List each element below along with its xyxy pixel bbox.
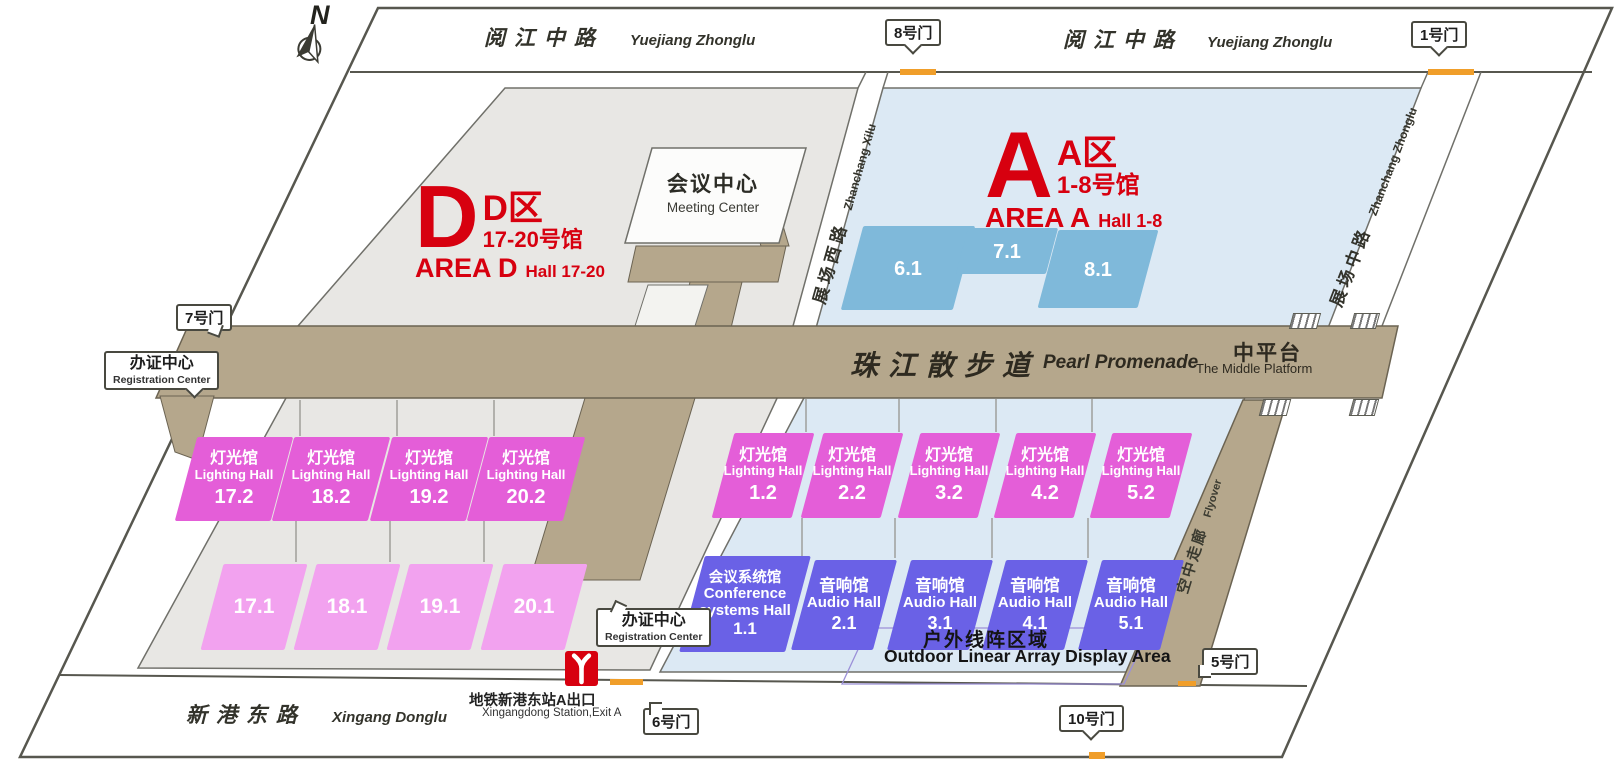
road-en: Yuejiang Zhonglu (1207, 34, 1332, 51)
gate-1-marker (1428, 69, 1474, 75)
hall-20-2: 灯光馆 Lighting Hall 20.2 (478, 437, 574, 521)
hall-number: 6.1 (894, 258, 922, 280)
meeting-center-zh: 会议中心 (643, 168, 783, 198)
meeting-center-en: Meeting Center (643, 200, 783, 215)
annex-building (635, 285, 708, 326)
hall-1-2: 灯光馆 Lighting Hall 1.2 (723, 433, 803, 518)
basemap (0, 0, 1617, 772)
area-a-letter: A (985, 128, 1051, 201)
hall-en-label: Audio Hall (903, 595, 977, 612)
stairs-icon (1349, 399, 1380, 416)
hall-number: 17.1 (234, 595, 275, 619)
area-d-letter: D (415, 183, 477, 252)
gate-6-marker (610, 679, 643, 685)
hall-en-label: Lighting Hall (1006, 464, 1085, 479)
hall-en-label: Audio Hall (1094, 595, 1168, 612)
hall-number: 20.2 (507, 486, 546, 508)
hall-2-2: 灯光馆 Lighting Hall 2.2 (812, 433, 892, 518)
road-en: Xingang Donglu (332, 709, 447, 726)
hall-en-label: Audio Hall (998, 595, 1072, 612)
hall-en-label: Audio Hall (807, 595, 881, 612)
hall-6-1: 6.1 (852, 226, 964, 310)
hall-zh-label: 灯光馆 (405, 450, 453, 468)
hall-zh-label: 灯光馆 (828, 447, 876, 465)
hall-number: 18.1 (327, 595, 368, 619)
hall-number: 19.2 (410, 486, 449, 508)
gate-10-label: 10号门 (1068, 711, 1115, 728)
hall-en-label: Lighting Hall (390, 468, 469, 483)
meeting-center-label: 会议中心 Meeting Center (643, 168, 783, 215)
promenade-zh: 珠江散步道 (850, 344, 1040, 384)
gate-6-callout: 6号门 (643, 708, 699, 735)
area-d-zone-zh: D区 (483, 191, 583, 226)
middle-platform-en: The Middle Platform (1196, 361, 1312, 376)
hall-en-label-1: Conference (704, 586, 787, 603)
hall-en-label: Lighting Hall (724, 464, 803, 479)
stairs-icon (1289, 313, 1321, 329)
registration-center-south-callout: 办证中心 Registration Center (596, 608, 711, 647)
road-label-yuejiang-west: 阅江中路 Yuejiang Zhonglu (484, 22, 755, 52)
hall-number: 5.1 (1118, 613, 1143, 633)
gate-10-callout: 10号门 (1059, 705, 1124, 732)
metro-icon (565, 651, 598, 686)
hall-19-2: 灯光馆 Lighting Hall 19.2 (381, 437, 477, 521)
road-zh: 阅江中路 (484, 22, 604, 52)
metro-y-glyph (565, 651, 598, 686)
hall-number: 4.2 (1031, 482, 1059, 504)
registration-en: Registration Center (605, 631, 702, 644)
hall-en-label: Lighting Hall (292, 468, 371, 483)
gate-7-callout: 7号门 (176, 304, 232, 331)
hall-2-1: 音响馆 Audio Hall 2.1 (803, 560, 885, 650)
gate-5-marker (1178, 681, 1196, 686)
gate-8-label: 8号门 (894, 25, 932, 42)
hall-en-label: Lighting Hall (1102, 464, 1181, 479)
hall-4-2: 灯光馆 Lighting Hall 4.2 (1005, 433, 1085, 518)
hall-zh-label: 音响馆 (819, 577, 869, 595)
hall-5-1: 音响馆 Audio Hall 5.1 (1090, 560, 1172, 650)
hall-en-label: Lighting Hall (910, 464, 989, 479)
hall-number: 18.2 (312, 486, 351, 508)
hall-19-1: 19.1 (398, 564, 482, 650)
registration-zh: 办证中心 (113, 354, 210, 374)
hall-number: 8.1 (1084, 259, 1112, 281)
callout-tail (1198, 665, 1211, 678)
hall-number: 2.1 (831, 613, 856, 633)
gate-7-label: 7号门 (185, 310, 223, 327)
area-d-halls-en: Hall 17-20 (526, 263, 605, 280)
area-a-halls-en: Hall 1-8 (1098, 212, 1162, 230)
registration-center-west-callout: 办证中心 Registration Center (104, 351, 219, 390)
hall-18-1: 18.1 (305, 564, 389, 650)
road-en: Yuejiang Zhonglu (630, 32, 755, 49)
compass-rose-icon (284, 22, 336, 70)
venue-map: N 阅江中路 Yuejiang Zhonglu 阅江中路 Yuejiang Zh… (0, 0, 1617, 772)
hall-en-label: Lighting Hall (813, 464, 892, 479)
area-a-zone-zh: A区 (1057, 136, 1140, 171)
hall-zh-label: 灯光馆 (1021, 447, 1069, 465)
area-a-halls-zh: 1-8号馆 (1057, 174, 1140, 198)
area-d-title: D D区 17-20号馆 AREA D Hall 17-20 (415, 183, 605, 282)
hall-number: 7.1 (993, 241, 1021, 263)
hall-17-2: 灯光馆 Lighting Hall 17.2 (186, 437, 282, 521)
gate-6-label: 6号门 (652, 714, 690, 731)
compass: N (284, 0, 356, 72)
hall-zh-label: 灯光馆 (210, 450, 258, 468)
area-d-halls-zh: 17-20号馆 (483, 229, 583, 251)
hall-20-1: 20.1 (492, 564, 576, 650)
gate-5-callout: 5号门 (1202, 648, 1258, 675)
gate-1-callout: 1号门 (1411, 21, 1467, 48)
hall-en-label-2: systems Hall (699, 603, 791, 620)
promenade-en: Pearl Promenade (1043, 352, 1198, 374)
hall-number: 20.1 (514, 595, 555, 619)
outdoor-area-en: Outdoor Linear Array Display Area (884, 646, 1171, 667)
road-label-xingang: 新港东路 Xingang Donglu (186, 699, 447, 729)
gate-10-marker (1089, 752, 1105, 759)
gate-1-label: 1号门 (1420, 27, 1458, 44)
central-corridor-horizontal (628, 246, 786, 282)
area-a-zone-en: AREA A (985, 204, 1090, 232)
hall-en-label: Lighting Hall (487, 468, 566, 483)
hall-zh-label: 灯光馆 (502, 450, 550, 468)
hall-zh-label: 音响馆 (915, 577, 965, 595)
registration-en: Registration Center (113, 374, 210, 387)
stairs-icon (1259, 399, 1292, 416)
hall-number: 2.2 (838, 482, 866, 504)
hall-5-2: 灯光馆 Lighting Hall 5.2 (1101, 433, 1181, 518)
hall-18-2: 灯光馆 Lighting Hall 18.2 (283, 437, 379, 521)
gate-5-label: 5号门 (1211, 654, 1249, 671)
hall-zh-label: 音响馆 (1106, 577, 1156, 595)
hall-number: 5.2 (1127, 482, 1155, 504)
area-a-title: A A区 1-8号馆 AREA A Hall 1-8 (985, 128, 1162, 232)
hall-zh-label: 灯光馆 (307, 450, 355, 468)
road-zh: 阅江中路 (1063, 24, 1183, 54)
road-label-yuejiang-east: 阅江中路 Yuejiang Zhonglu (1063, 24, 1332, 54)
metro-en: Xingangdong Station,Exit A (482, 707, 621, 719)
hall-7-1: 7.1 (962, 228, 1052, 274)
registration-zh: 办证中心 (605, 611, 702, 631)
hall-zh-label: 灯光馆 (925, 447, 973, 465)
hall-zh-label: 灯光馆 (1117, 447, 1165, 465)
stairs-icon (1350, 313, 1380, 329)
gate-8-marker (900, 69, 936, 75)
hall-3-2: 灯光馆 Lighting Hall 3.2 (909, 433, 989, 518)
hall-zh-label: 会议系统馆 (709, 570, 782, 586)
hall-number: 17.2 (215, 486, 254, 508)
hall-zh-label: 灯光馆 (739, 447, 787, 465)
hall-number: 1.2 (749, 482, 777, 504)
road-zh: 新港东路 (186, 699, 306, 729)
hall-17-1: 17.1 (212, 564, 296, 650)
area-d-zone-en: AREA D (415, 255, 518, 282)
hall-zh-label: 音响馆 (1010, 577, 1060, 595)
hall-8-1: 8.1 (1048, 230, 1148, 308)
hall-number: 19.1 (420, 595, 461, 619)
hall-number: 1.1 (733, 619, 757, 638)
hall-number: 3.2 (935, 482, 963, 504)
hall-en-label: Lighting Hall (195, 468, 274, 483)
gate-8-callout: 8号门 (885, 19, 941, 46)
